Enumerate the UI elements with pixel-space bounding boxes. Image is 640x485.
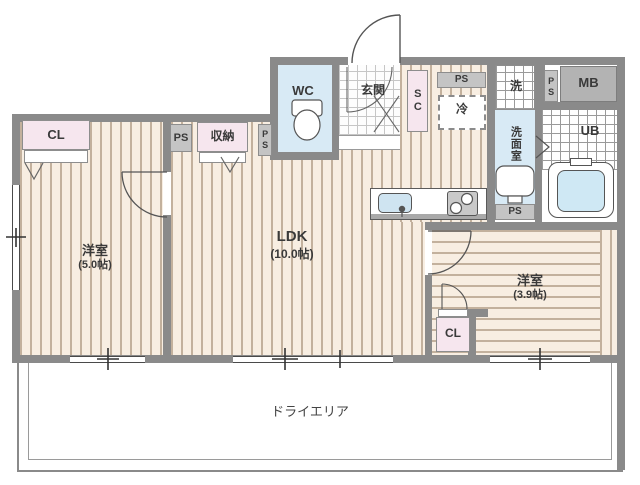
shoe-closet-label: SC (407, 78, 428, 124)
bathtub-inner (557, 170, 605, 212)
storage-label: 収納 (197, 128, 248, 146)
wall-wc-right (332, 57, 339, 160)
window-right-room (490, 356, 590, 363)
ps-vert-left-label: PS (258, 125, 272, 155)
ps-top-left-label: PS (169, 129, 193, 147)
right-room-label: 洋室 (3.9帖) (475, 273, 585, 303)
closet-right-label: CL (438, 326, 468, 342)
unit-bath-label: UB (572, 122, 608, 140)
ldk-label: LDK (10.0帖) (232, 228, 352, 262)
bathtub-ledge (570, 158, 592, 166)
kitchen-sink (378, 193, 412, 213)
wall-cl-right-stub-h (468, 309, 488, 317)
storage-shuno-door (199, 152, 246, 163)
closet-right-door (438, 309, 468, 317)
wall-ub-top (535, 102, 625, 110)
closet-left-door (24, 150, 88, 163)
right-room-name: 洋室 (475, 273, 585, 289)
left-room-label: 洋室 (5.0帖) (45, 243, 145, 273)
floor-plan: CL PS 収納 PS WC 玄関 SC PS 冷 洗 洗面室 PS MB UB… (0, 0, 640, 485)
ldk-size: (10.0帖) (232, 247, 352, 262)
ldk-name: LDK (232, 228, 352, 247)
closet-left-label: CL (30, 126, 82, 144)
window-left-wall (12, 185, 20, 290)
left-room-size: (5.0帖) (45, 259, 145, 273)
wc-room (278, 65, 332, 152)
wc-label: WC (281, 82, 325, 100)
kitchen-stove (447, 191, 478, 216)
wall-washroom-ub (535, 110, 542, 222)
ps-bottom-label: PS (495, 205, 535, 219)
left-room-name: 洋室 (45, 243, 145, 259)
ps-vert-right-label: PS (544, 72, 558, 101)
wall-leftroom-ldk-lower (163, 215, 171, 363)
genkan-step (339, 135, 400, 150)
entrance-door (352, 15, 400, 63)
floor-right-room-edge (600, 230, 617, 355)
wall-ldk-rightroom (425, 275, 432, 363)
washer-label: 洗 (498, 78, 534, 96)
meter-box-label: MB (562, 74, 615, 92)
ps-top-center-label: PS (437, 72, 486, 88)
wall-wc-bottom (270, 152, 338, 160)
dry-area-label: ドライエリア (230, 402, 390, 422)
wall-right (617, 57, 625, 470)
wall-top-right (400, 57, 625, 65)
genkan-tile (339, 65, 400, 135)
washroom-label: 洗面室 (501, 118, 529, 170)
wall-rightroom-top (425, 222, 625, 230)
fridge-label: 冷 (438, 100, 486, 120)
genkan-label: 玄関 (348, 83, 398, 99)
window-ldk (233, 356, 393, 363)
window-left-room (70, 356, 145, 363)
wall-kitchen-washroom (487, 63, 495, 222)
right-room-size: (3.9帖) (475, 289, 585, 303)
